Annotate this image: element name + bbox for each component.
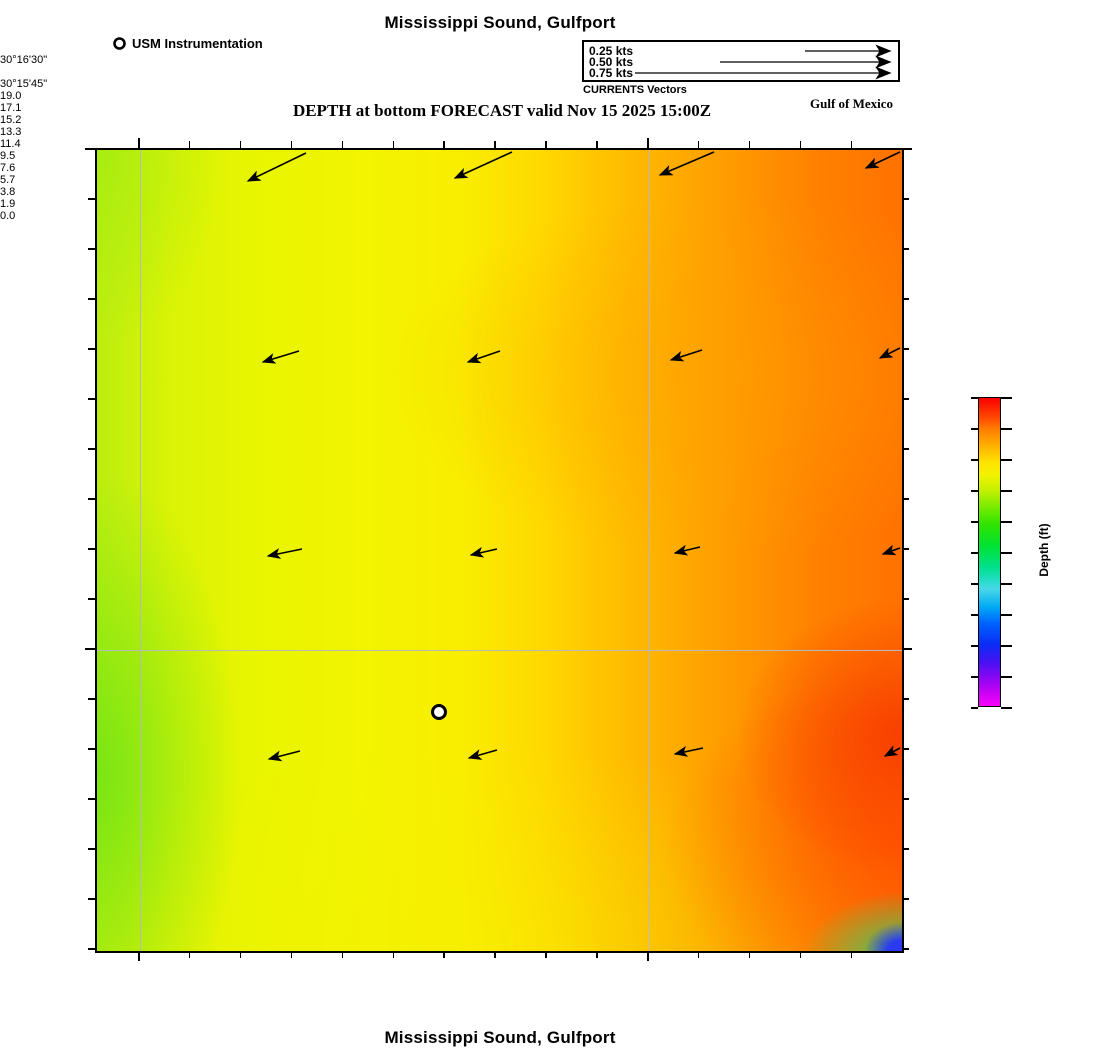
- colorbar: [978, 397, 1001, 707]
- forecast-plot: Mississippi Sound, Gulfport USM Instrume…: [0, 0, 1100, 1050]
- axis-tick: [902, 948, 909, 950]
- axis-tick: [647, 951, 649, 961]
- current-vector: [675, 547, 700, 553]
- axis-tick: [545, 951, 547, 958]
- colorbar-tick: [1001, 428, 1012, 430]
- axis-tick: [902, 298, 909, 300]
- axis-tick: [902, 448, 909, 450]
- axis-tick: [902, 248, 909, 250]
- current-vector-arrows: [97, 150, 902, 951]
- axis-tick: [902, 398, 909, 400]
- axis-tick: [138, 951, 140, 961]
- colorbar-tick: [1001, 552, 1012, 554]
- axis-tick: [902, 598, 909, 600]
- axis-tick: [902, 748, 909, 750]
- colorbar-tick-label: 7.6: [0, 162, 1100, 174]
- current-vector: [471, 549, 497, 555]
- axis-tick: [88, 948, 95, 950]
- colorbar-tick: [971, 583, 978, 585]
- axis-tick: [800, 951, 802, 958]
- current-vector: [469, 750, 497, 758]
- colorbar-tick-label: 5.7: [0, 174, 1100, 186]
- colorbar-tick: [1001, 707, 1012, 709]
- colorbar-tick-label: 9.5: [0, 150, 1100, 162]
- colorbar-axis-label: Depth (ft): [1037, 523, 1051, 576]
- colorbar-tick: [971, 552, 978, 554]
- axis-tick: [342, 951, 344, 958]
- colorbar-tick: [971, 490, 978, 492]
- lon-tick-label: −89°04'30": [0, 36, 550, 48]
- colorbar-tick: [1001, 614, 1012, 616]
- current-vector: [880, 348, 900, 358]
- axis-tick: [902, 898, 909, 900]
- colorbar-tick: [971, 397, 978, 399]
- lon-tick-label: −89°04'30": [0, 24, 550, 36]
- axis-tick: [88, 498, 95, 500]
- colorbar-tick: [971, 428, 978, 430]
- colorbar-tick: [971, 707, 978, 709]
- colorbar-tick-label: 13.3: [0, 126, 1100, 138]
- axis-tick: [902, 848, 909, 850]
- current-vector: [883, 548, 900, 554]
- current-vector: [263, 351, 299, 362]
- colorbar-tick: [1001, 521, 1012, 523]
- axis-tick: [88, 448, 95, 450]
- colorbar-tick-label: 11.4: [0, 138, 1100, 150]
- colorbar-tick-label: 19.0: [0, 90, 1100, 102]
- current-vector: [468, 351, 500, 362]
- current-vector: [675, 748, 703, 754]
- axis-tick: [902, 348, 909, 350]
- axis-tick: [88, 348, 95, 350]
- lat-tick-label: 30°16'30": [0, 54, 1100, 66]
- colorbar-tick-label: 0.0: [0, 210, 1100, 222]
- axis-tick: [749, 951, 751, 958]
- axis-tick: [88, 598, 95, 600]
- axis-tick: [902, 648, 912, 650]
- axis-tick: [85, 648, 95, 650]
- current-vector: [268, 549, 302, 556]
- colorbar-tick: [1001, 397, 1012, 399]
- current-vector: [885, 748, 900, 756]
- current-vector: [671, 350, 702, 360]
- axis-tick: [393, 951, 395, 958]
- axis-tick: [494, 951, 496, 958]
- colorbar-tick-label: 3.8: [0, 186, 1100, 198]
- axis-tick: [902, 798, 909, 800]
- colorbar-tick: [1001, 459, 1012, 461]
- axis-tick: [88, 298, 95, 300]
- colorbar-tick: [971, 459, 978, 461]
- axis-tick: [88, 848, 95, 850]
- colorbar-tick: [971, 645, 978, 647]
- colorbar-tick: [971, 521, 978, 523]
- footer-title: Mississippi Sound, Gulfport: [384, 1028, 615, 1048]
- axis-tick: [88, 548, 95, 550]
- axis-tick: [291, 951, 293, 958]
- colorbar-tick: [971, 676, 978, 678]
- colorbar-tick: [1001, 645, 1012, 647]
- station-marker: [433, 706, 446, 719]
- axis-tick: [88, 898, 95, 900]
- axis-tick: [902, 548, 909, 550]
- axis-tick: [240, 951, 242, 958]
- axis-tick: [443, 951, 445, 958]
- lon-tick-label: −89°05'15": [0, 12, 550, 24]
- colorbar-tick: [1001, 490, 1012, 492]
- axis-tick: [88, 698, 95, 700]
- colorbar-tick-label: 15.2: [0, 114, 1100, 126]
- colorbar-tick: [1001, 676, 1012, 678]
- colorbar-tick: [971, 614, 978, 616]
- axis-tick: [88, 798, 95, 800]
- axis-tick: [189, 951, 191, 958]
- colorbar-tick-label: 1.9: [0, 198, 1100, 210]
- colorbar-tick: [1001, 583, 1012, 585]
- axis-tick: [698, 951, 700, 958]
- colorbar-tick-label: 17.1: [0, 102, 1100, 114]
- depth-heatmap: [95, 148, 904, 953]
- axis-tick: [88, 748, 95, 750]
- lon-tick-label: −89°05'15": [0, 0, 550, 12]
- lat-tick-label: 30°15'45": [0, 78, 1100, 90]
- axis-tick: [902, 698, 909, 700]
- axis-tick: [851, 951, 853, 958]
- axis-tick: [902, 498, 909, 500]
- current-vector: [269, 751, 300, 759]
- axis-tick: [88, 248, 95, 250]
- axis-tick: [88, 398, 95, 400]
- axis-tick: [596, 951, 598, 958]
